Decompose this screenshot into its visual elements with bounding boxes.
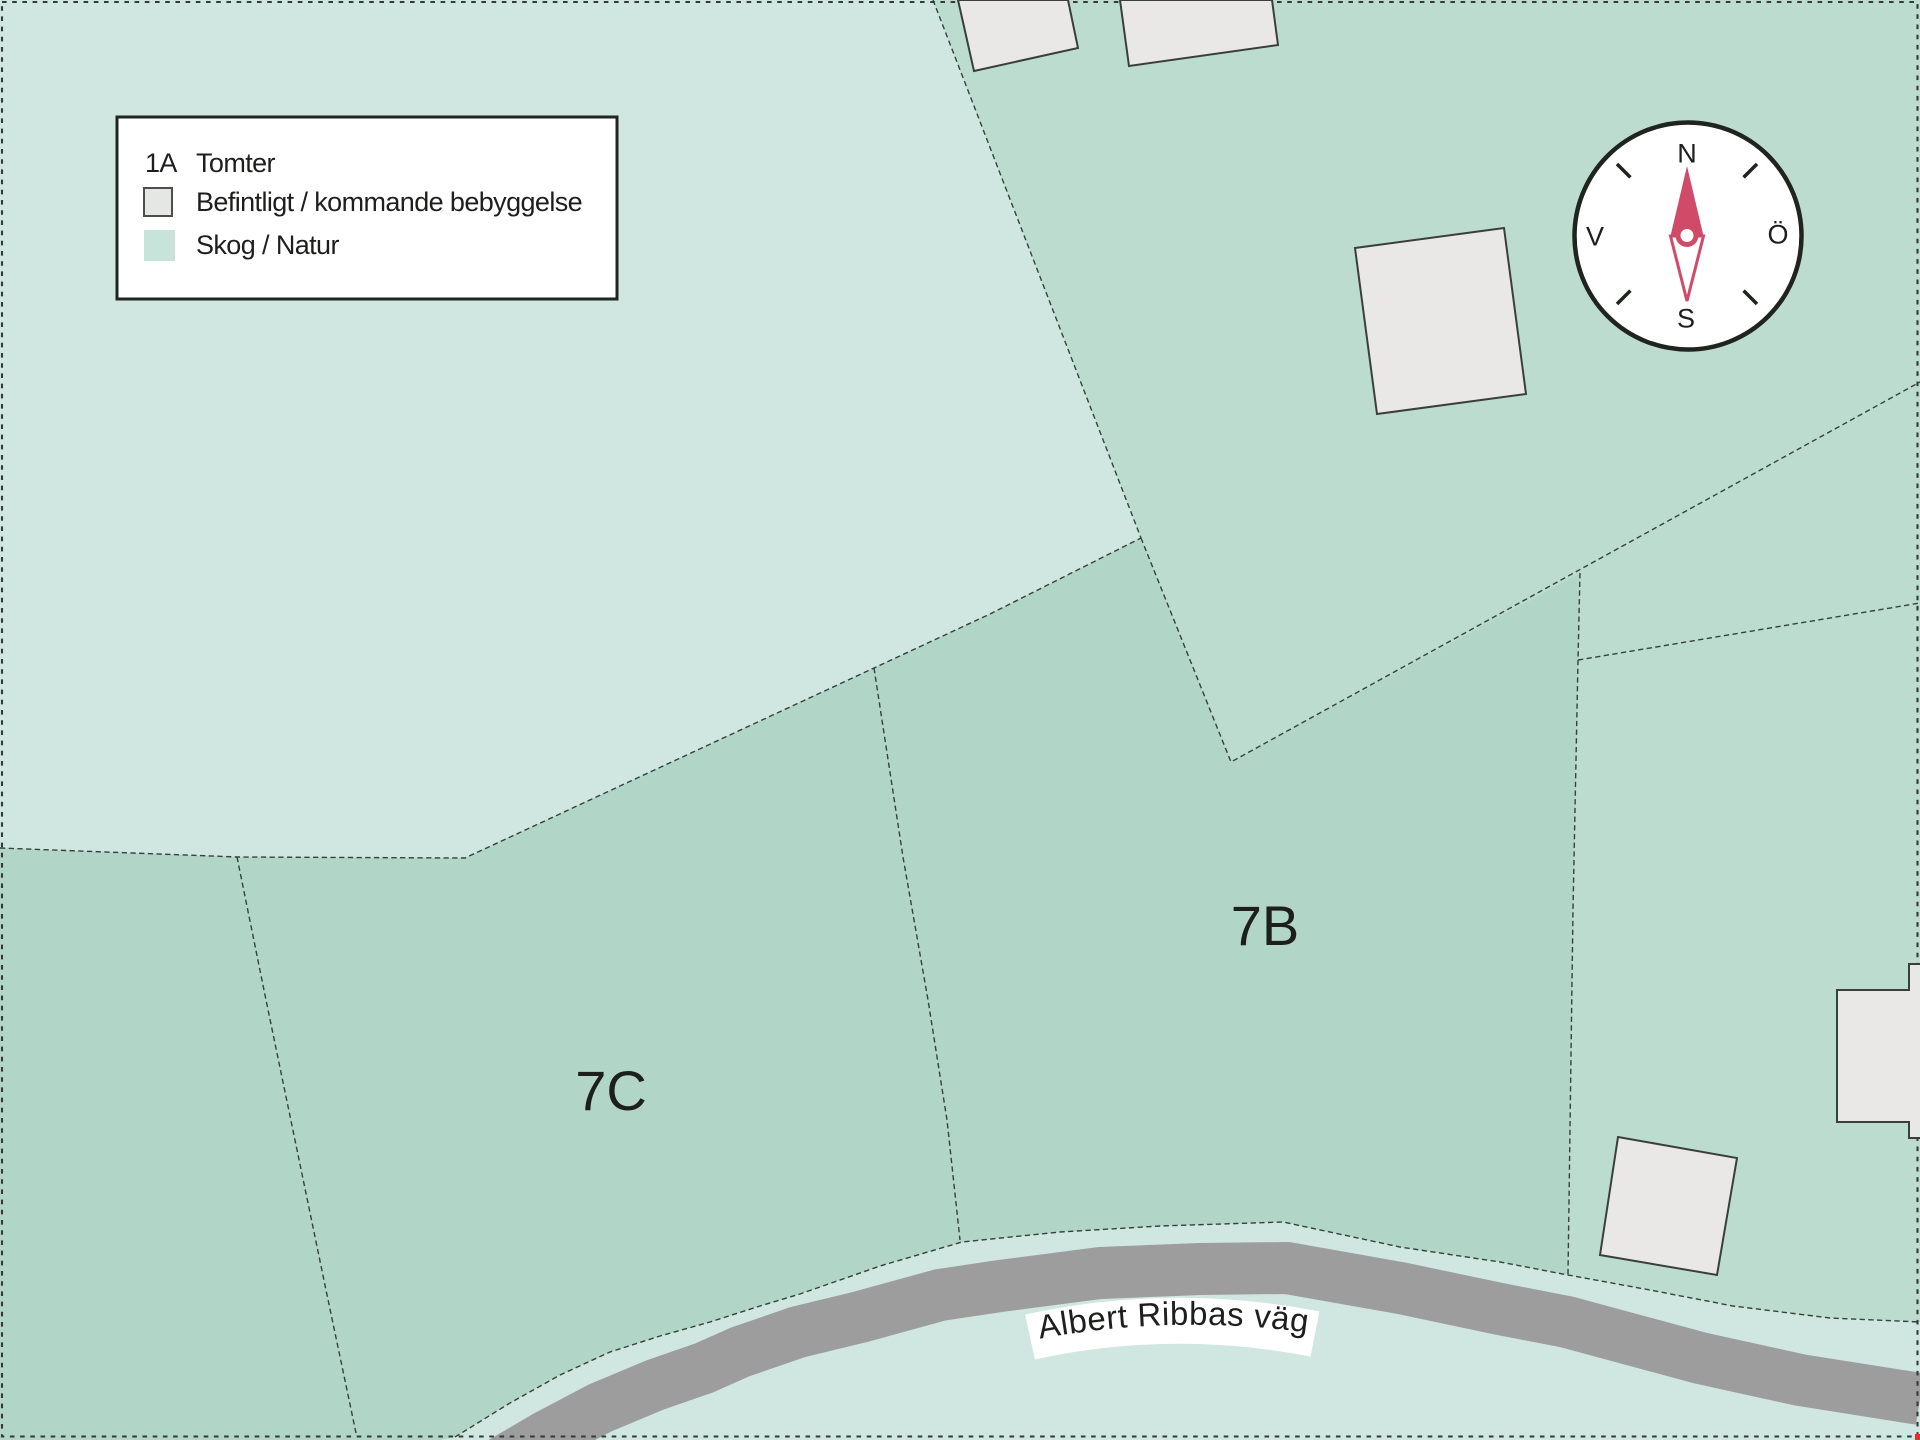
svg-text:Tomter: Tomter	[196, 148, 276, 178]
svg-text:7C: 7C	[575, 1059, 647, 1122]
svg-text:7B: 7B	[1231, 894, 1300, 957]
svg-text:V: V	[1586, 222, 1604, 252]
svg-text:Skog / Natur: Skog / Natur	[196, 230, 339, 260]
svg-text:N: N	[1677, 139, 1697, 169]
svg-text:S: S	[1677, 304, 1695, 334]
svg-text:1A: 1A	[145, 148, 177, 178]
svg-text:Befintligt / kommande bebyggel: Befintligt / kommande bebyggelse	[196, 187, 582, 217]
svg-text:Ö: Ö	[1767, 220, 1788, 250]
